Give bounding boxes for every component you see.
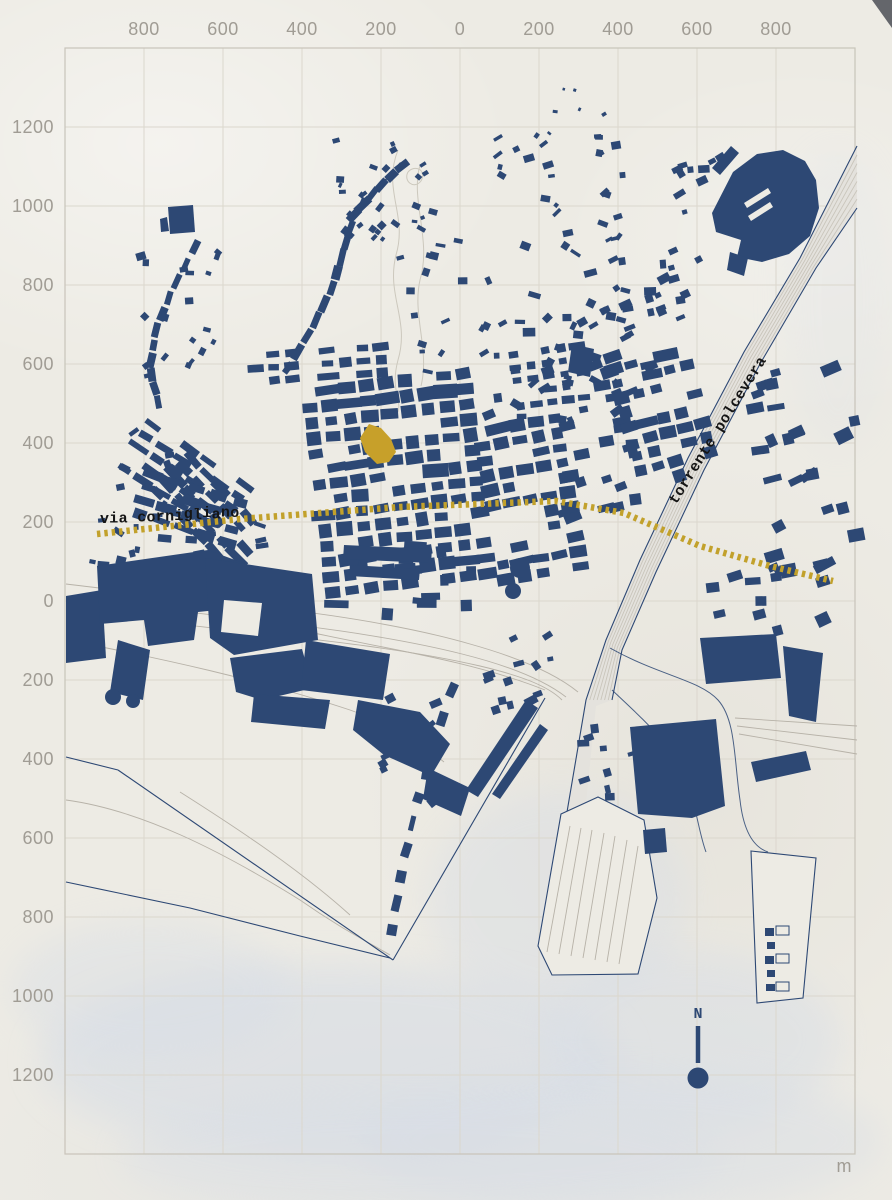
- unit-label: m: [837, 1156, 853, 1176]
- rail-line: [737, 726, 857, 740]
- tank-building: [126, 694, 140, 708]
- building-footprint: [230, 649, 313, 700]
- pier-outline: [751, 851, 816, 1003]
- axis-tick-label: 0: [43, 591, 54, 611]
- building-footprint: [251, 694, 330, 729]
- axis-tick-label: 800: [760, 19, 792, 39]
- building-footprint: [423, 768, 470, 816]
- building-footprint: [168, 205, 195, 234]
- tank-building: [105, 689, 121, 705]
- axis-tick-label: 600: [207, 19, 239, 39]
- axis-tick-label: 1000: [12, 986, 54, 1006]
- paper-corner-fold: [872, 0, 892, 28]
- highlighted-building: [360, 424, 396, 464]
- axis-tick-label: 400: [602, 19, 634, 39]
- rail-line: [739, 734, 857, 754]
- map-canvas: 8006004002000200400600800120010008006004…: [0, 0, 892, 1200]
- tank-building: [505, 583, 521, 599]
- building-footprint: [700, 634, 781, 684]
- north-label: N: [693, 1006, 702, 1023]
- axis-tick-label: 800: [22, 275, 54, 295]
- tank-building: [510, 558, 530, 578]
- axis-tick-label: 1200: [12, 1065, 54, 1085]
- axis-tick-label: 400: [286, 19, 318, 39]
- building-footprint: [353, 700, 450, 776]
- axis-tick-label: 800: [128, 19, 160, 39]
- axis-tick-label: 600: [681, 19, 713, 39]
- building-footprint: [643, 828, 667, 854]
- axis-tick-label: 400: [22, 433, 54, 453]
- axis-tick-label: 1200: [12, 117, 54, 137]
- axis-tick-label: 1000: [12, 196, 54, 216]
- building-footprint: [160, 217, 169, 232]
- building-footprint: [221, 600, 262, 636]
- axis-tick-label: 600: [22, 828, 54, 848]
- axis-tick-label: 200: [523, 19, 555, 39]
- axis-tick-label: 600: [22, 354, 54, 374]
- map-figure: 8006004002000200400600800120010008006004…: [0, 0, 892, 1200]
- building-footprint: [783, 646, 823, 722]
- contour-line: [393, 150, 402, 412]
- rail-line: [735, 718, 857, 726]
- axis-tick-label: 200: [365, 19, 397, 39]
- axis-tick-label: 400: [22, 749, 54, 769]
- axis-tick-label: 800: [22, 907, 54, 927]
- building-footprint: [568, 344, 594, 377]
- building-footprint: [630, 719, 725, 818]
- north-dot: [688, 1068, 709, 1089]
- axis-tick-label: 200: [22, 512, 54, 532]
- axis-tick-label: 200: [22, 670, 54, 690]
- axis-tick-label: 0: [455, 19, 466, 39]
- building-footprint: [301, 640, 390, 700]
- building-footprint: [751, 751, 811, 782]
- rail-line: [180, 792, 350, 915]
